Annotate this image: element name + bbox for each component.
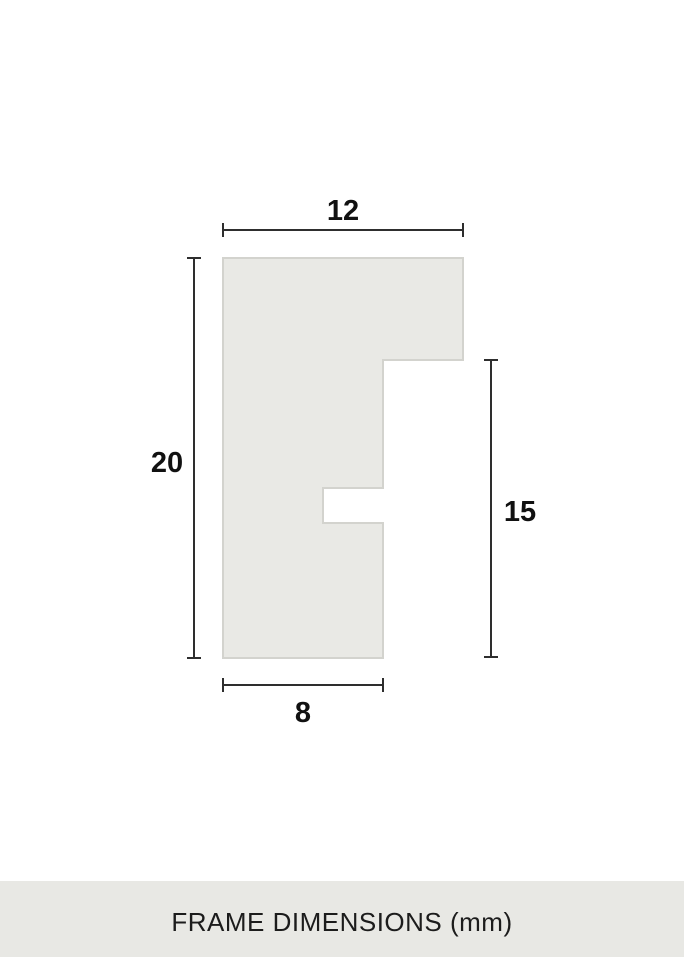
footer-caption-text: FRAME DIMENSIONS (mm) (171, 901, 512, 938)
frame-profile-shape (223, 258, 463, 658)
dimension-bottom-width: 8 (223, 678, 383, 729)
dim-label-bottom-width: 8 (295, 697, 311, 729)
dimension-left-height: 20 (151, 258, 201, 658)
product-dimension-page: 12 20 15 8 FRAME DIMENSIONS (mm) (0, 0, 684, 957)
dim-label-top-width: 12 (327, 195, 359, 227)
dimension-right-height: 15 (484, 360, 536, 657)
footer-caption-bar: FRAME DIMENSIONS (mm) (0, 881, 684, 957)
frame-profile-diagram: 12 20 15 8 (0, 0, 684, 881)
dim-label-left-height: 20 (151, 447, 183, 479)
dimension-top-width: 12 (223, 195, 463, 237)
dim-label-right-height: 15 (504, 496, 536, 528)
